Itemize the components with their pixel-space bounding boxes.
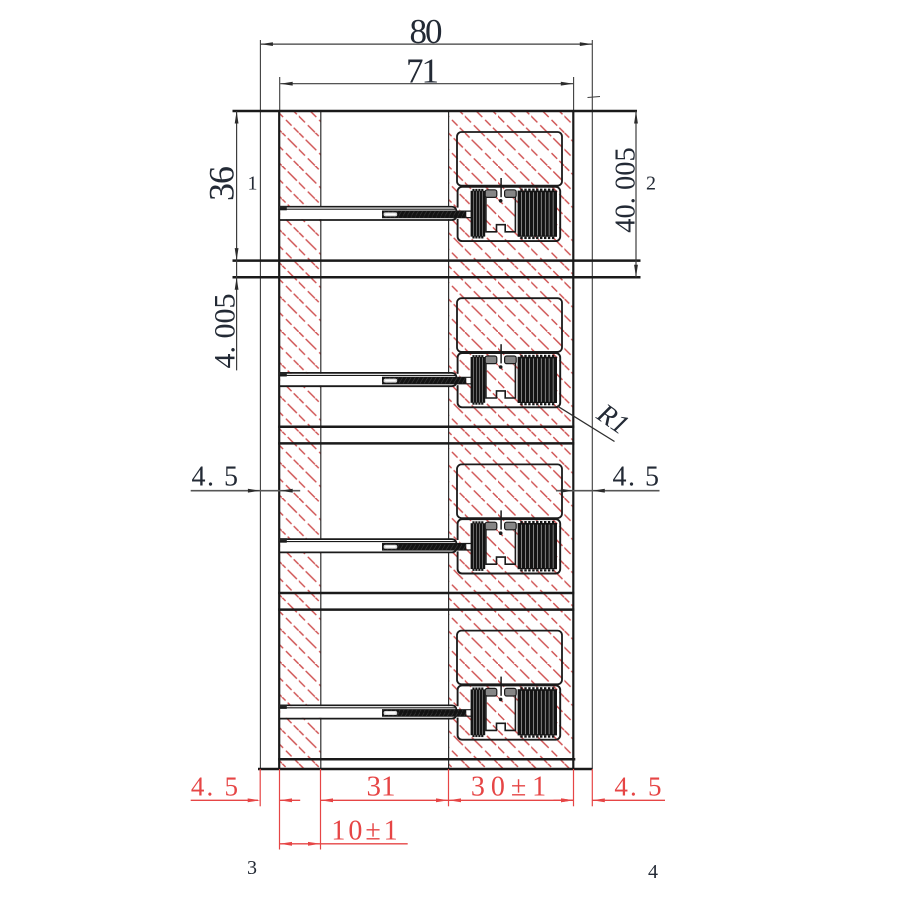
svg-text:71: 71 — [406, 52, 438, 91]
svg-text:4. 5: 4. 5 — [613, 462, 661, 493]
svg-text:80: 80 — [410, 12, 443, 51]
svg-text:1: 1 — [248, 173, 258, 195]
svg-text:31: 31 — [367, 771, 396, 803]
svg-text:4. 5: 4. 5 — [191, 772, 240, 802]
svg-text:40. 005: 40. 005 — [611, 147, 642, 233]
svg-text:10±1: 10±1 — [331, 816, 400, 847]
svg-text:4: 4 — [648, 861, 658, 883]
svg-text:4. 5: 4. 5 — [614, 772, 663, 802]
svg-text:4. 005: 4. 005 — [208, 294, 241, 369]
svg-text:4. 5: 4. 5 — [192, 462, 240, 493]
svg-text:2: 2 — [646, 173, 656, 195]
svg-text:3: 3 — [247, 857, 257, 879]
svg-text:30±1: 30±1 — [471, 772, 552, 803]
svg-text:36: 36 — [202, 167, 242, 201]
